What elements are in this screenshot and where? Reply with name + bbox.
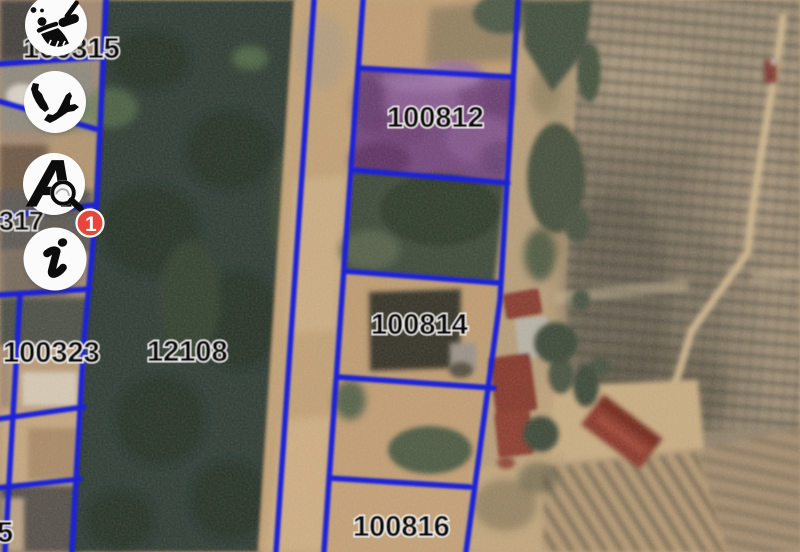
svg-text:100323: 100323: [3, 337, 100, 369]
svg-text:5: 5: [0, 517, 13, 549]
svg-text:100812: 100812: [387, 102, 484, 134]
svg-text:1: 1: [85, 213, 97, 236]
svg-text:100816: 100816: [353, 511, 450, 543]
svg-text:12108: 12108: [147, 336, 228, 368]
svg-text:100814: 100814: [371, 309, 468, 341]
